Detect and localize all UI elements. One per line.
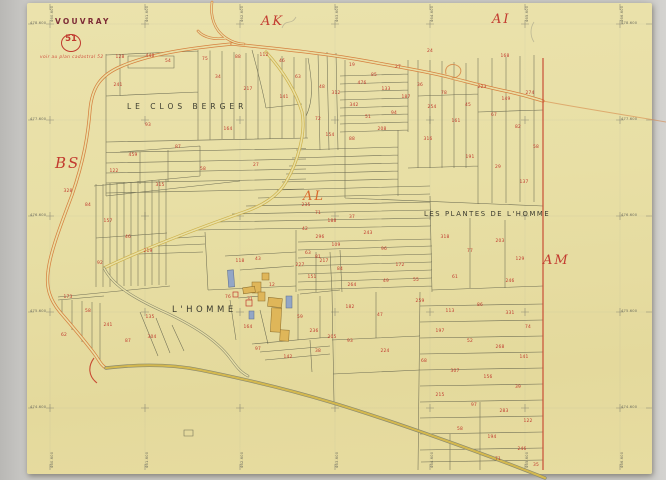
parcel-hamlet-area xyxy=(184,50,342,436)
roads xyxy=(48,2,666,478)
road-top-connector xyxy=(198,2,244,44)
parcel-block-upper-right xyxy=(318,52,543,206)
building-blue xyxy=(249,311,254,319)
building-yellow xyxy=(258,292,265,301)
building-yellow xyxy=(262,273,269,280)
grid-edge-ticks xyxy=(28,4,652,470)
grid-faint-lines xyxy=(30,6,650,468)
parcel-fan-al xyxy=(139,130,432,292)
parcel-block-clos-berger xyxy=(106,50,308,196)
building-yellow xyxy=(280,330,290,341)
road-left xyxy=(48,44,233,368)
parcel-lines xyxy=(58,50,543,470)
building-blue xyxy=(227,270,234,287)
map-drawing xyxy=(0,0,666,480)
buildings xyxy=(227,270,292,341)
building-yellow xyxy=(268,297,283,307)
junction-red-arc xyxy=(90,358,97,383)
building-red-outline xyxy=(233,292,238,297)
parcel-block-plantes xyxy=(432,218,543,290)
parcel-strips-southwest xyxy=(58,296,184,360)
grid-layer xyxy=(28,4,652,470)
building-blue xyxy=(286,296,292,308)
cadastral-map-scan: VOUVRAY 51 voir au plan cadastral 52 AKA… xyxy=(0,0,666,480)
building-red-outline xyxy=(246,300,252,306)
road-main-top xyxy=(232,44,666,122)
pencil-marks xyxy=(282,17,534,42)
building-yellow xyxy=(270,308,281,332)
parcel-block-bottom-right xyxy=(332,292,543,470)
road-hamlet xyxy=(104,268,248,376)
